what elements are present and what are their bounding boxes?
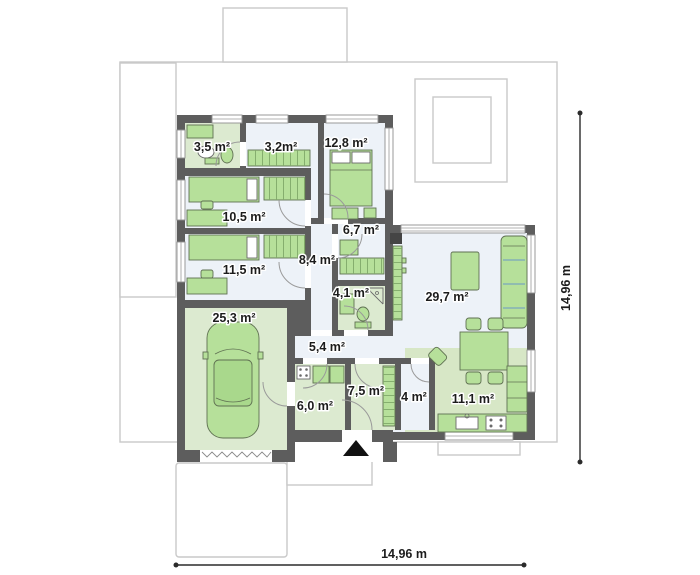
dimension-right-label: 14,96 m bbox=[559, 265, 573, 311]
chair-icon bbox=[488, 318, 503, 330]
terrace-top bbox=[223, 8, 347, 62]
window-living-glazing bbox=[401, 225, 525, 233]
room-garage-label: 25,3 m² bbox=[212, 311, 255, 325]
fridge-cabinet-icon bbox=[507, 366, 527, 412]
window bbox=[527, 235, 535, 293]
room-wardrobe-hall-label: 3,2m² bbox=[265, 140, 298, 154]
vanity-icon bbox=[187, 125, 213, 138]
room-utility-room-label: 6,0 m² bbox=[297, 399, 333, 413]
hall-wardrobe bbox=[383, 366, 395, 426]
chair-icon bbox=[201, 270, 213, 278]
room-pantry-label: 4 m² bbox=[401, 390, 427, 404]
chair-icon bbox=[466, 372, 481, 384]
chair-icon bbox=[201, 201, 213, 209]
cabinet-icon bbox=[340, 240, 358, 255]
dryer-icon bbox=[330, 366, 344, 383]
car-icon bbox=[203, 322, 263, 438]
pillow-icon bbox=[247, 237, 257, 258]
kitchen-counter-icon bbox=[438, 414, 527, 432]
room-corridor-label: 5,4 m² bbox=[309, 340, 345, 354]
room-bathroom-small-label: 3,5 m² bbox=[194, 140, 230, 154]
pillow-icon bbox=[247, 179, 257, 200]
hob-icon bbox=[297, 366, 310, 379]
nightstand-icon bbox=[364, 208, 376, 218]
window bbox=[445, 432, 513, 440]
sink-icon bbox=[456, 417, 478, 429]
chair-icon bbox=[466, 318, 481, 330]
coffee-table-icon bbox=[451, 252, 479, 290]
desk-icon bbox=[187, 278, 227, 294]
floor-plan-page: 3,5 m² 3,2m² 12,8 m² 10,5 m² 6,7 m² 11,5… bbox=[0, 0, 700, 575]
room-bedroom-2-label: 10,5 m² bbox=[222, 210, 265, 224]
floor-plan-drawing: 3,5 m² 3,2m² 12,8 m² 10,5 m² 6,7 m² 11,5… bbox=[0, 0, 700, 575]
room-entrance-hall-label: 7,5 m² bbox=[348, 384, 384, 398]
window bbox=[385, 128, 393, 190]
driveway bbox=[176, 463, 287, 557]
room-bedroom-1-label: 12,8 m² bbox=[324, 136, 367, 150]
room-kitchen-label: 11,1 m² bbox=[452, 392, 494, 406]
patio-inner bbox=[433, 97, 491, 163]
sofa-icon bbox=[501, 236, 527, 328]
room-hallway-floor-n bbox=[311, 168, 318, 224]
stove-icon bbox=[486, 416, 506, 430]
window bbox=[177, 130, 185, 158]
desk-icon bbox=[187, 210, 227, 226]
dresser-icon bbox=[332, 208, 358, 219]
toilet-icon bbox=[357, 307, 369, 321]
window bbox=[212, 115, 242, 123]
room-bathroom-label: 4,1 m² bbox=[333, 286, 369, 300]
room-hallway-label: 8,4 m² bbox=[299, 253, 335, 267]
toilet-tank-icon bbox=[355, 322, 371, 328]
window bbox=[177, 242, 185, 282]
bed-double-icon bbox=[330, 150, 376, 219]
room-living-room-label: 29,7 m² bbox=[425, 290, 468, 304]
terrace-kitchen bbox=[438, 442, 520, 455]
terrace-left bbox=[120, 63, 176, 297]
window bbox=[527, 350, 535, 392]
window bbox=[177, 180, 185, 220]
room-bedroom-3-label: 11,5 m² bbox=[223, 263, 265, 277]
room-study-label: 6,7 m² bbox=[343, 223, 379, 237]
front-door-opening bbox=[342, 430, 372, 442]
dining-table-icon bbox=[460, 332, 508, 370]
window bbox=[256, 115, 288, 123]
chair-icon bbox=[488, 372, 503, 384]
window bbox=[326, 115, 378, 123]
dimension-bottom-label: 14,96 m bbox=[381, 547, 427, 561]
